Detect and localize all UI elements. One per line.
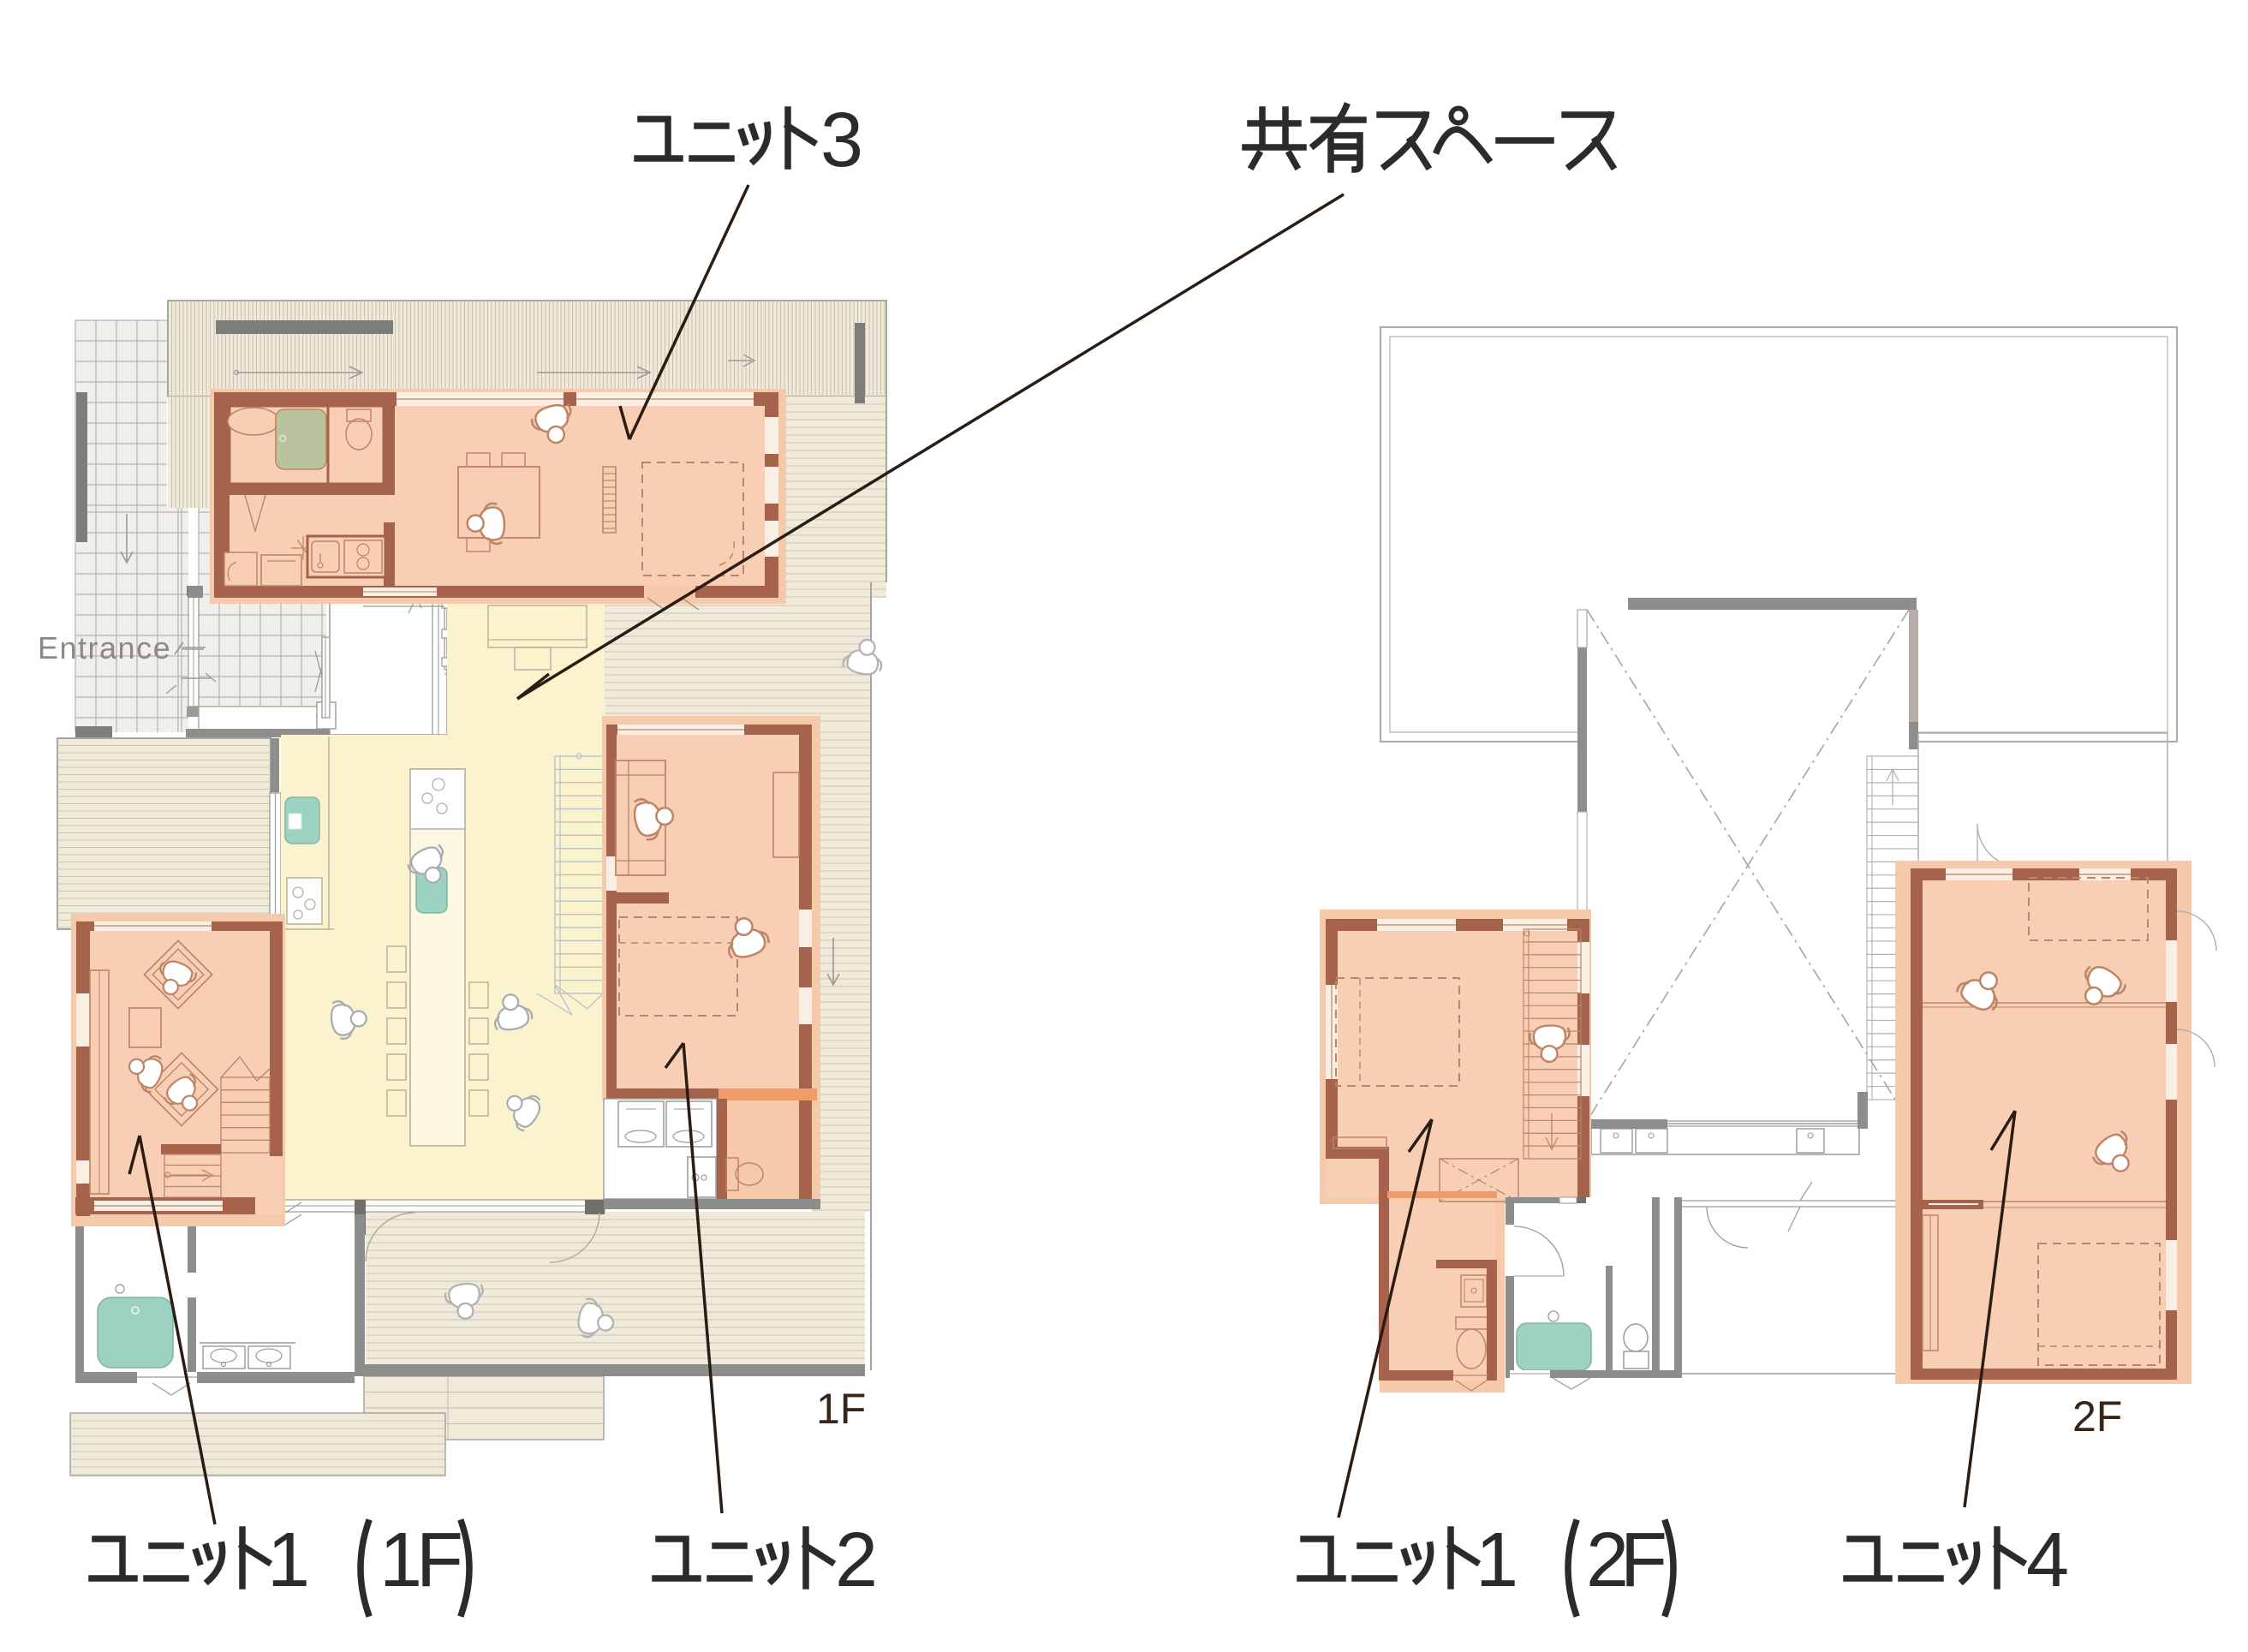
svg-text:Entrance: Entrance <box>38 630 171 665</box>
svg-text:1: 1 <box>267 1518 310 1603</box>
svg-text:3: 3 <box>820 98 863 183</box>
svg-text:1F: 1F <box>816 1385 866 1433</box>
svg-text:F: F <box>416 1518 463 1603</box>
svg-text:F: F <box>1620 1518 1667 1603</box>
svg-text:4: 4 <box>2026 1518 2069 1603</box>
svg-text:2: 2 <box>835 1518 878 1603</box>
svg-text:2F: 2F <box>2072 1393 2122 1440</box>
svg-text:1: 1 <box>1476 1518 1518 1603</box>
